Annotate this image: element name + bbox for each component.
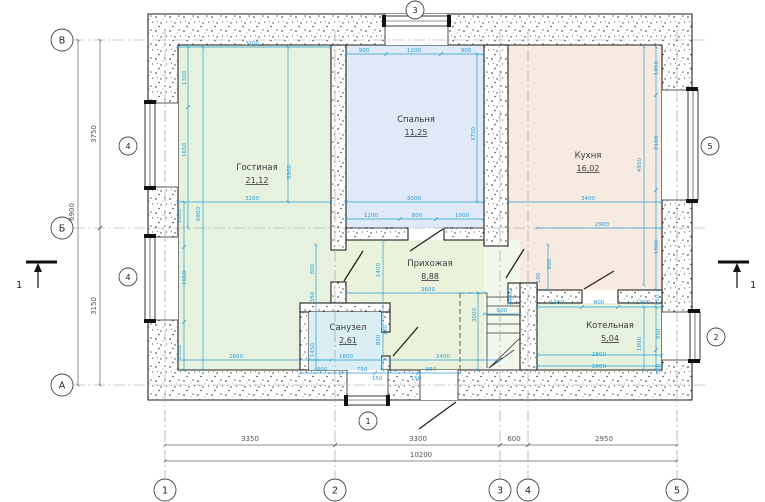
axis-col-3-label: 3 <box>497 486 503 497</box>
dimension-label: 1000 <box>550 300 565 306</box>
dimension-label: 1650 <box>182 142 188 157</box>
door-entrance <box>419 402 456 429</box>
room-bath-label: Санузел <box>330 323 367 333</box>
axis-col-5-label: 5 <box>674 486 680 497</box>
wall-living-hall-stub <box>331 282 346 303</box>
axis-row-А-label: А <box>59 381 66 392</box>
dimension-label: 950 <box>656 328 662 339</box>
dimension-label: 1200 <box>364 213 379 219</box>
room-living-label: Гостиная <box>236 163 277 173</box>
dimension-label: 2400 <box>436 354 451 360</box>
window-tag-5-label: 5 <box>707 142 712 151</box>
room-boiler-fill <box>537 303 662 370</box>
window-left-upper <box>144 100 156 190</box>
room-kitchen-label: Кухня <box>575 151 602 161</box>
dimension-label: 3000 <box>472 307 478 322</box>
window-left-lower <box>144 234 156 323</box>
dimension-label: 6900 <box>196 206 202 221</box>
dimension-label: 1300 <box>177 344 183 359</box>
axis-col-bubbles: 1 2 3 4 5 <box>154 479 688 501</box>
dimension-label: 900 <box>461 48 472 54</box>
wall-bedroom-hall-left <box>346 228 408 240</box>
dimension-label: 2100 <box>654 135 660 150</box>
dimension-label: 900 <box>359 48 370 54</box>
window-tag-3-label: 3 <box>412 6 417 15</box>
dimension-label: 1000 <box>636 300 651 306</box>
dimension-label: 6900 <box>68 203 76 221</box>
dimension-label: 800 <box>310 263 316 274</box>
room-bedroom-area: 11,25 <box>405 128 428 137</box>
wall-stair-boiler <box>520 283 537 370</box>
wall-bath-right-lower <box>381 356 390 370</box>
dimension-label: 1400 <box>376 262 382 277</box>
section-mark-right-label: 1 <box>750 280 756 291</box>
dimension-label: 1650 <box>182 270 188 285</box>
section-mark-left-label: 1 <box>16 280 22 291</box>
axis-row-B-label: В <box>59 36 66 47</box>
dimension-label: 1000 <box>177 208 183 223</box>
room-hall-label: Прихожая <box>407 259 453 269</box>
wall-bath-top <box>300 303 390 312</box>
room-boiler-label: Котельная <box>586 321 634 331</box>
section-mark-left: 1 <box>16 262 57 291</box>
dimension-label: 1800 <box>654 239 660 254</box>
room-boiler-area: 5,04 <box>601 334 619 343</box>
dimension-label: 100 <box>383 324 389 335</box>
dimension-label: 3000 <box>407 196 422 202</box>
axis-col-1-label: 1 <box>162 486 168 497</box>
dimension-label: 3600 <box>421 287 436 293</box>
wall-bedroom-kitchen <box>484 45 508 246</box>
axis-row-Б-label: Б <box>59 224 66 235</box>
dimension-label: 600 <box>497 308 508 314</box>
dimension-label: 3150 <box>90 297 98 315</box>
dimension-label: 3200 <box>245 196 260 202</box>
dimension-label: 2900 <box>595 222 610 228</box>
window-right-lower <box>688 309 700 363</box>
wall-living-bedroom <box>331 45 346 250</box>
dimension-label: 2950 <box>595 435 613 443</box>
stairwell-fill <box>484 240 520 370</box>
dimension-label: 1450 <box>310 342 316 357</box>
wall-bedroom-hall-right <box>444 228 484 240</box>
dimension-label: 500 <box>656 363 662 374</box>
dimension-label: 800 <box>412 213 423 219</box>
dimension-label: 950 <box>426 367 437 373</box>
dimension-label: 1000 <box>455 213 470 219</box>
axis-col-2-label: 2 <box>332 486 338 497</box>
dimension-label: 3200 <box>245 41 260 47</box>
dimension-label: 250 <box>507 294 513 305</box>
dimension-label: 150 <box>372 376 383 382</box>
dimension-label: 1200 <box>407 48 422 54</box>
dimension-label: 5300 <box>287 164 293 179</box>
dimension-label: 3750 <box>471 126 477 141</box>
dimension-label: 2600 <box>229 354 244 360</box>
window-tag-4a-label: 4 <box>125 142 130 151</box>
window-right-upper <box>686 87 698 203</box>
dimension-label: 3300 <box>409 435 427 443</box>
dimension-label: 600 <box>507 435 520 443</box>
floor-plan-drawing: 3750315069003350330060029501020032001300… <box>0 0 765 502</box>
dimension-label: 10200 <box>410 451 432 459</box>
dimension-label: 3400 <box>581 196 596 202</box>
dimension-label: 1300 <box>182 70 188 85</box>
dimension-label: 800 <box>376 334 382 345</box>
window-bottom <box>344 395 390 406</box>
dimension-label: 2800 <box>592 364 607 370</box>
dimension-label: 4950 <box>637 157 643 172</box>
window-tag-2-label: 2 <box>713 333 718 342</box>
axis-col-4-label: 4 <box>525 486 531 497</box>
room-bedroom-label: Спальня <box>397 115 435 125</box>
dimension-label: 750 <box>357 367 368 373</box>
window-tag-1-label: 1 <box>365 417 370 426</box>
dimension-label: 800 <box>547 258 553 269</box>
section-mark-right: 1 <box>718 262 756 291</box>
dimension-label: 150 <box>411 376 422 382</box>
dimension-label: 350 <box>310 291 316 302</box>
dimension-label: 800 <box>594 300 605 306</box>
room-living-area: 21,12 <box>246 176 269 185</box>
floor-plan-svg: 3750315069003350330060029501020032001300… <box>0 0 765 502</box>
dimension-label: 3750 <box>90 125 98 143</box>
dimension-label: 2800 <box>592 352 607 358</box>
room-kitchen-area: 16,02 <box>577 164 600 173</box>
room-bath-area: 2,61 <box>339 336 357 345</box>
dimension-label: 1050 <box>654 60 660 75</box>
dimension-label: 900 <box>317 367 328 373</box>
dimension-label: 1800 <box>339 354 354 360</box>
window-tag-4b-label: 4 <box>125 273 130 282</box>
dimension-label: 550 <box>655 294 661 305</box>
dimension-label: 100 <box>536 272 542 283</box>
dimension-label: 1800 <box>637 336 643 351</box>
room-hall-area: 8,88 <box>421 272 439 281</box>
dimension-label: 3350 <box>241 435 259 443</box>
wall-bath-left <box>300 312 309 370</box>
